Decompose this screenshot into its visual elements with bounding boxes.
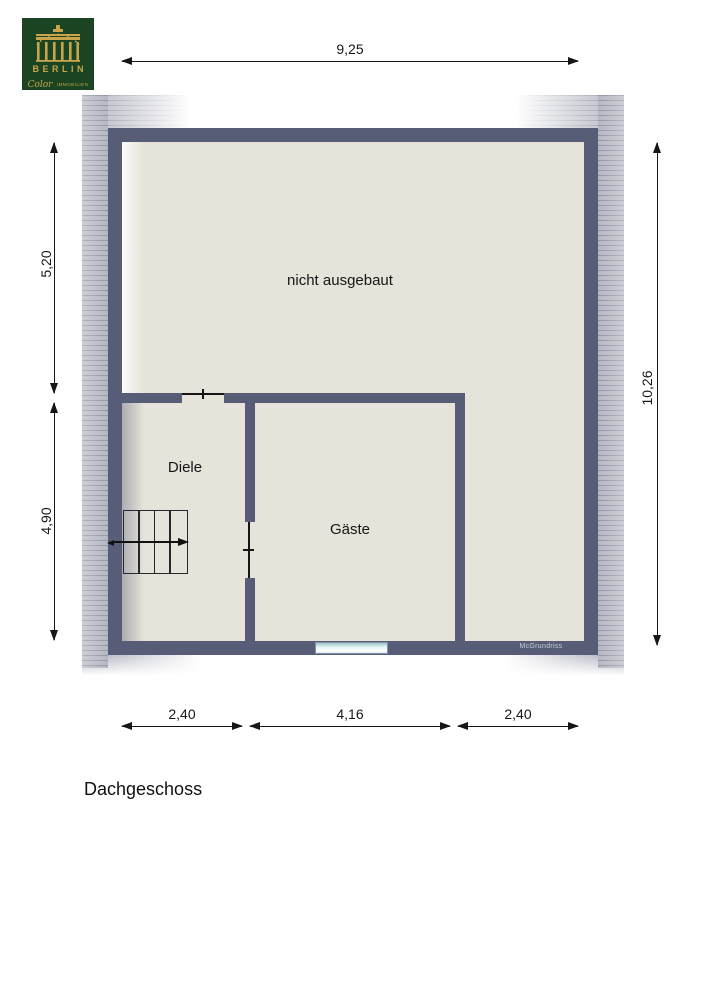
interior-wall-gaeste-right [455,403,465,641]
roof-band-bottom [82,655,624,679]
dim-label-left-lower: 4,90 [38,499,54,543]
logo-berlin-text: BERLIN [22,64,94,74]
dim-line-bottom-middle [250,726,450,727]
dim-label-top: 9,25 [122,41,578,57]
interior-wall-diele-top-right [224,393,465,403]
roof-band-right [598,95,624,668]
roof-band-top [82,95,624,128]
logo-subtitle: Color IMMOBILIEN [22,74,94,92]
dim-label-bottom-middle: 4,16 [250,706,450,722]
watermark: McGrundriss [500,643,582,650]
dim-line-left-upper [54,143,55,393]
door-opening-diele-tick [202,389,204,399]
dim-line-bottom-left [122,726,242,727]
dim-line-right [657,143,658,645]
dim-line-top [122,61,578,62]
room-label-nicht-ausgebaut: nicht ausgebaut [240,272,440,289]
dim-label-right: 10,26 [639,363,655,413]
dim-label-bottom-right: 2,40 [458,706,578,722]
room-label-gaeste: Gäste [300,521,400,538]
logo-immobilien-text: IMMOBILIEN [57,82,89,87]
agency-logo: BERLIN Color IMMOBILIEN [22,18,94,90]
dim-line-bottom-right [458,726,578,727]
roof-slope-shading-upper [122,142,144,393]
floor-plan-outline [108,128,598,655]
roof-band-left [82,95,108,668]
logo-color-text: Color [28,80,53,90]
dim-label-bottom-left: 2,40 [122,706,242,722]
stairs-arrow-start-icon [107,540,114,546]
interior-wall-diele-gaeste-lower [245,578,255,641]
stairs-arrow-head-icon [178,538,189,546]
floorplan-page: BERLIN Color IMMOBILIEN McGrundriss nich… [0,0,706,1000]
door-opening-gaeste-tick [243,549,254,551]
interior-wall-diele-top-left [122,393,182,403]
brandenburg-gate-icon [22,20,94,64]
window-bottom-wall [315,642,388,654]
interior-wall-diele-gaeste-upper [245,403,255,522]
stairs-direction-arrow [112,541,186,543]
room-label-diele: Diele [135,459,235,476]
dim-label-left-upper: 5,20 [38,242,54,286]
floor-title: Dachgeschoss [84,779,202,800]
dim-line-left-lower [54,403,55,640]
